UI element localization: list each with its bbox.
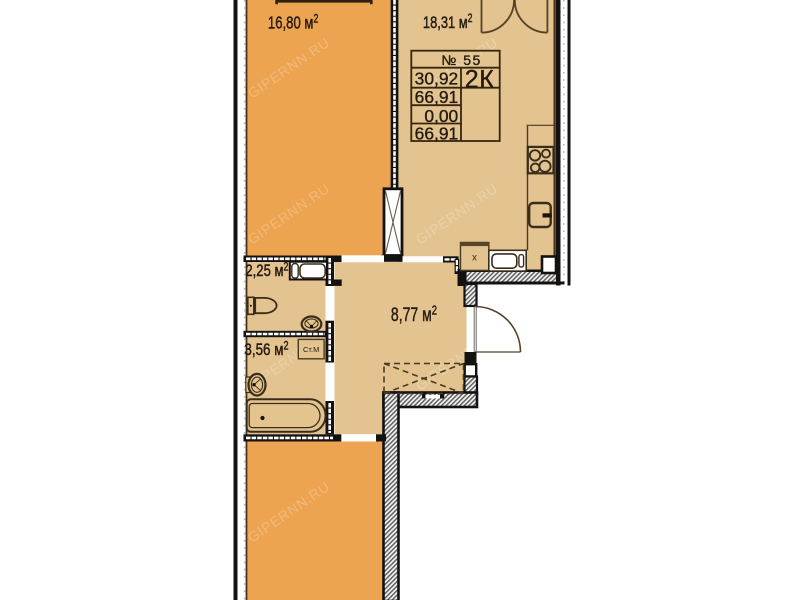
svg-text:66,91: 66,91 — [415, 87, 459, 107]
svg-text:x: x — [472, 253, 477, 264]
svg-text:16,80 м2: 16,80 м2 — [268, 12, 319, 33]
svg-text:3,56 м2: 3,56 м2 — [244, 341, 288, 360]
svg-text:2,25 м2: 2,25 м2 — [245, 262, 288, 281]
svg-text:8,77 м2: 8,77 м2 — [391, 304, 437, 326]
svg-text:18,31 м2: 18,31 м2 — [423, 13, 473, 32]
svg-text:2К: 2К — [465, 65, 495, 93]
svg-text:66,91: 66,91 — [415, 123, 459, 143]
svg-text:Ст.М: Ст.М — [303, 345, 319, 354]
svg-text:30,92: 30,92 — [415, 68, 459, 88]
